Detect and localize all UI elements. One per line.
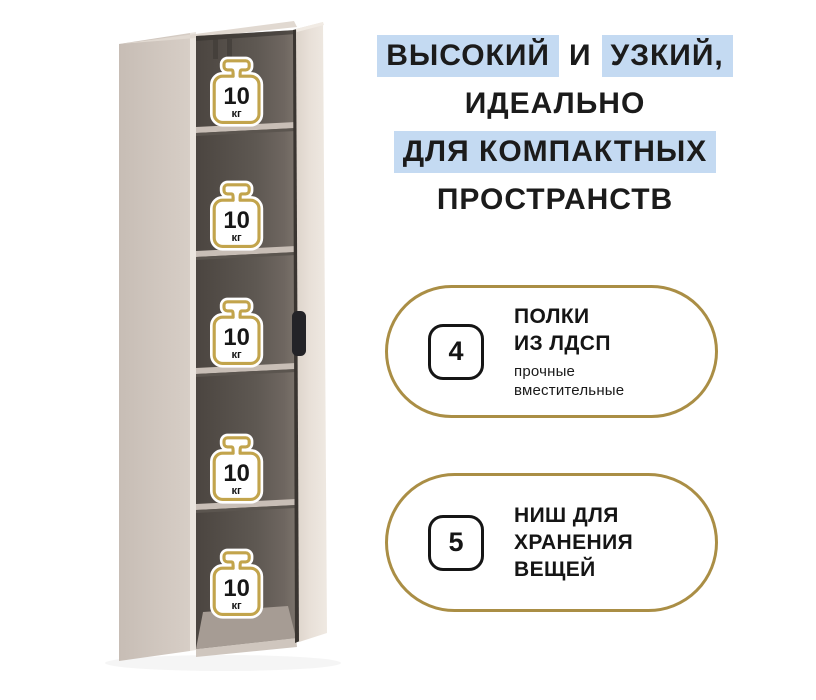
feature-count: 4 [448,336,463,367]
weight-10kg-icon [214,185,259,247]
door-handle [292,311,306,356]
feature-title-line: ИЗ ЛДСП [514,330,624,357]
headline-text-ideal: ИДЕАЛЬНО [465,83,646,125]
feature-subtitle-line: прочные [514,362,624,381]
feature-title-line: ПОЛКИ [514,303,624,330]
headline-conjunction: И [569,35,592,77]
weight-10kg-icon [214,553,259,615]
feature-card-niches: 5 НИШ ДЛЯ ХРАНЕНИЯ ВЕЩЕЙ [385,473,718,612]
feature-title-line: ХРАНЕНИЯ [514,529,633,556]
feature-title-line: НИШ ДЛЯ [514,502,633,529]
headline-line-4: ПРОСТРАНСТВ [345,176,765,224]
feature-card-shelves: 4 ПОЛКИ ИЗ ЛДСП прочные вместительные [385,285,718,418]
cabinet-front-edge [190,32,196,651]
headline-highlight-tall: ВЫСОКИЙ [377,35,559,77]
back-panel-seam [213,39,218,59]
product-infographic: 10 кг [0,0,816,700]
feature-title-line: ВЕЩЕЙ [514,556,633,583]
headline-line-3: ДЛЯ КОМПАКТНЫХ [345,128,765,176]
headline-line-2: ИДЕАЛЬНО [345,80,765,128]
headline-highlight-narrow: УЗКИЙ, [602,35,733,77]
feature-count-box: 5 [428,515,484,571]
weight-10kg-icon [214,61,259,123]
headline-line-1: ВЫСОКИЙ И УЗКИЙ, [345,32,765,80]
weight-10kg-icon [214,438,259,500]
weight-10kg-icon [214,302,259,364]
feature-text: НИШ ДЛЯ ХРАНЕНИЯ ВЕЩЕЙ [514,502,633,583]
feature-subtitle-line: вместительные [514,381,624,400]
headline: ВЫСОКИЙ И УЗКИЙ, ИДЕАЛЬНО ДЛЯ КОМПАКТНЫХ… [345,32,765,224]
back-panel-seam [227,39,232,59]
headline-highlight-compact: ДЛЯ КОМПАКТНЫХ [394,131,717,173]
feature-count-box: 4 [428,324,484,380]
feature-count: 5 [448,527,463,558]
cabinet-side-panel [119,33,190,661]
headline-text-spaces: ПРОСТРАНСТВ [437,179,673,221]
feature-text: ПОЛКИ ИЗ ЛДСП прочные вместительные [514,303,624,400]
